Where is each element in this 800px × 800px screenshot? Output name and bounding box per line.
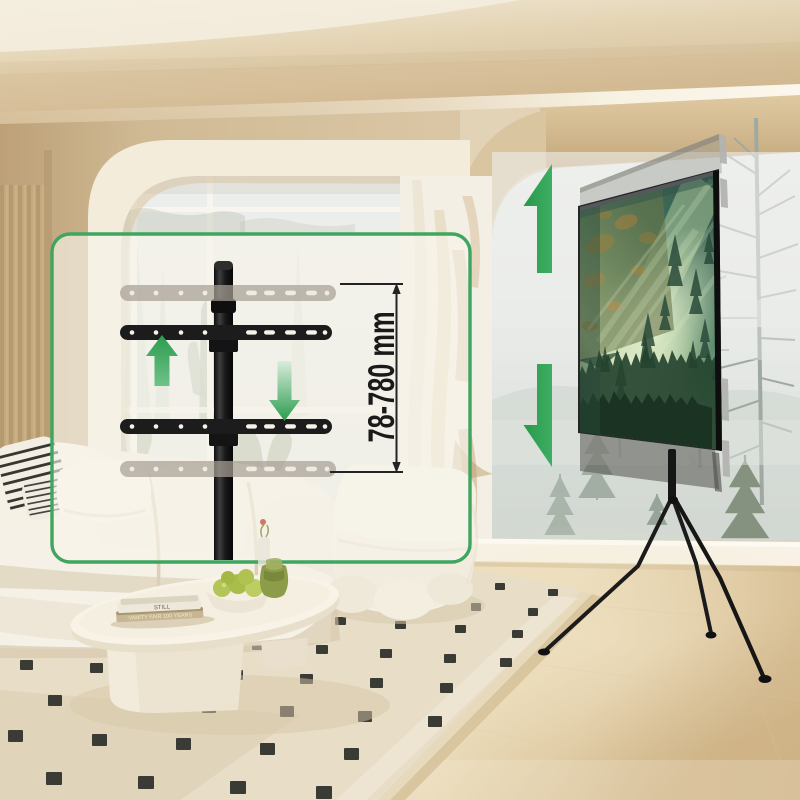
svg-text:STILL: STILL — [154, 604, 171, 611]
svg-text:78-780 mm: 78-780 mm — [361, 312, 402, 443]
